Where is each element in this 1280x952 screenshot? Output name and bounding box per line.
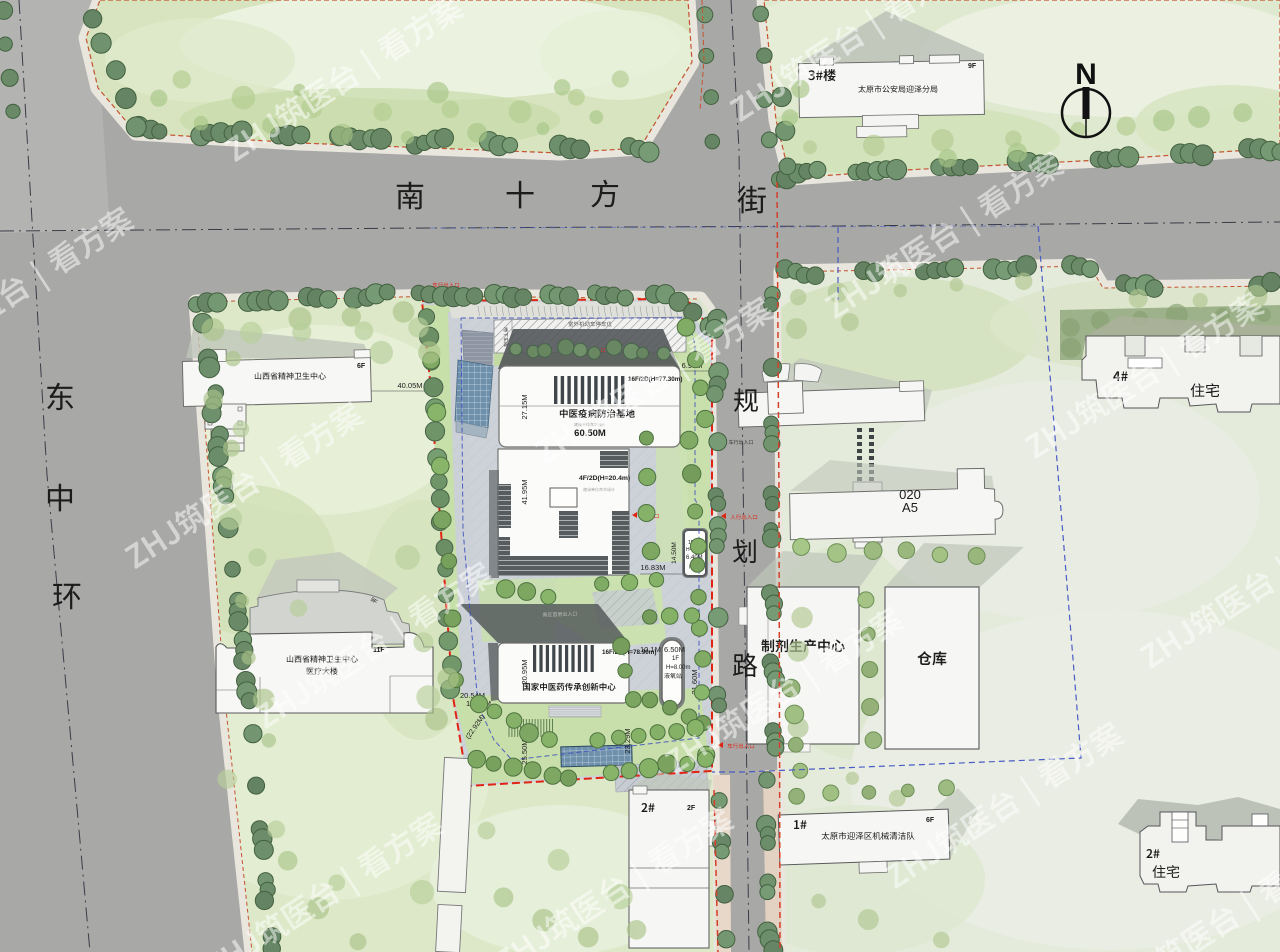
svg-text:9F: 9F <box>968 63 977 70</box>
svg-text:60.50M: 60.50M <box>574 428 606 439</box>
svg-text:N: N <box>1075 58 1097 91</box>
svg-text:6F: 6F <box>357 363 366 370</box>
svg-text:2F: 2F <box>687 805 696 812</box>
svg-text:6.50M: 6.50M <box>664 645 685 654</box>
svg-text:40.05M: 40.05M <box>397 381 422 390</box>
svg-text:41.95M: 41.95M <box>520 479 529 504</box>
svg-text:6F: 6F <box>926 817 935 824</box>
svg-text:16.83M: 16.83M <box>640 563 665 572</box>
svg-text:14.50M: 14.50M <box>671 542 678 564</box>
svg-text:10.1M: 10.1M <box>640 645 661 654</box>
svg-text:4F/2D(H=20.4m): 4F/2D(H=20.4m) <box>579 475 630 482</box>
svg-text:1F: 1F <box>672 656 679 662</box>
svg-text:20.95M: 20.95M <box>520 659 529 684</box>
svg-text:27.15M: 27.15M <box>520 394 529 419</box>
svg-text:25.50M: 25.50M <box>520 739 529 764</box>
svg-text:A5: A5 <box>902 500 918 515</box>
svg-text:H=8.00m: H=8.00m <box>666 665 691 671</box>
